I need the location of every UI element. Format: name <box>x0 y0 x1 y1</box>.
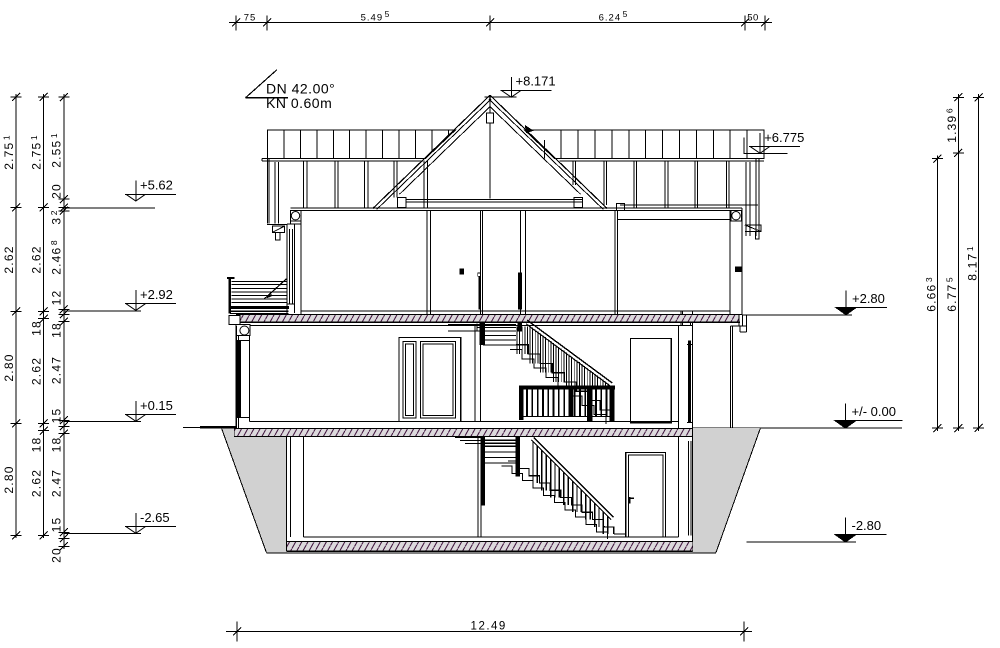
svg-text:+2.80: +2.80 <box>852 291 885 306</box>
svg-text:+/- 0.00: +/- 0.00 <box>852 404 896 419</box>
svg-text:2.80: 2.80 <box>2 465 16 493</box>
svg-text:20: 20 <box>50 183 64 199</box>
svg-text:2.47: 2.47 <box>50 356 64 384</box>
svg-text:20: 20 <box>50 547 64 563</box>
svg-text:+8.171: +8.171 <box>516 74 556 89</box>
svg-text:18: 18 <box>50 322 64 338</box>
svg-text:18: 18 <box>30 437 44 453</box>
svg-text:12: 12 <box>50 290 64 306</box>
svg-text:+6.775: +6.775 <box>764 130 804 145</box>
svg-text:2.62: 2.62 <box>30 357 44 385</box>
svg-text:2.62: 2.62 <box>30 469 44 497</box>
svg-text:15: 15 <box>50 408 64 424</box>
svg-text:50: 50 <box>747 12 759 23</box>
svg-text:KN 0.60m: KN 0.60m <box>266 95 332 111</box>
svg-text:-2.80: -2.80 <box>852 518 882 533</box>
svg-text:2.47: 2.47 <box>50 469 64 497</box>
svg-text:18: 18 <box>30 320 44 336</box>
svg-text:12.49: 12.49 <box>471 620 507 632</box>
svg-text:75: 75 <box>244 12 257 23</box>
svg-text:2.62: 2.62 <box>30 245 44 273</box>
svg-text:2.80: 2.80 <box>2 353 16 381</box>
svg-text:15: 15 <box>50 517 64 533</box>
svg-text:-2.65: -2.65 <box>140 510 170 525</box>
svg-text:+2.92: +2.92 <box>140 287 173 302</box>
svg-text:18: 18 <box>50 437 64 453</box>
svg-text:2.62: 2.62 <box>2 245 16 273</box>
svg-text:+0.15: +0.15 <box>140 398 173 413</box>
svg-text:+5.62: +5.62 <box>140 178 173 193</box>
